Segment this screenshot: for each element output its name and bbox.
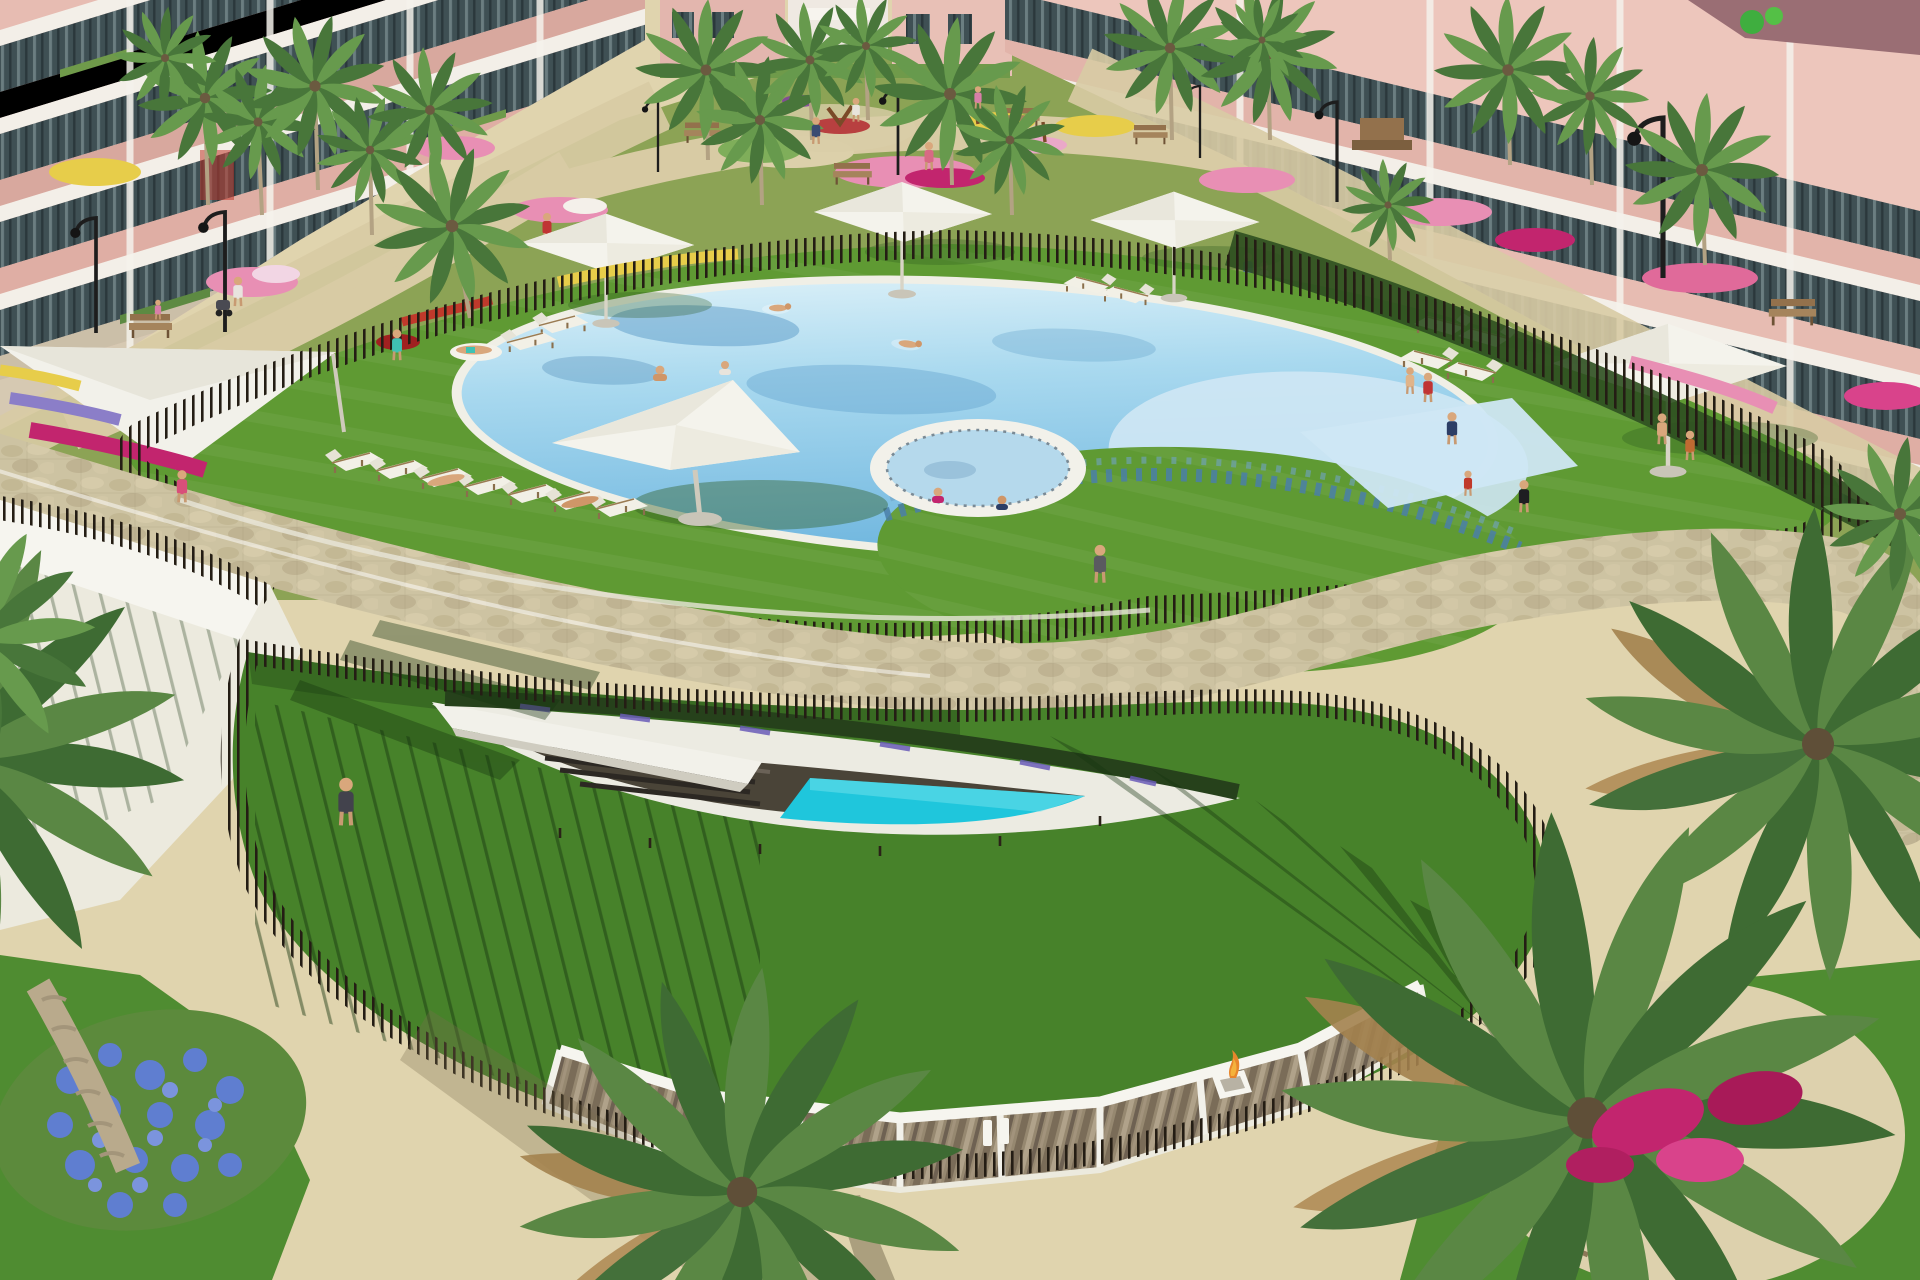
resort-rendering bbox=[0, 0, 1920, 1280]
spa-circle bbox=[870, 419, 1086, 517]
rendering-canvas bbox=[0, 0, 1920, 1280]
